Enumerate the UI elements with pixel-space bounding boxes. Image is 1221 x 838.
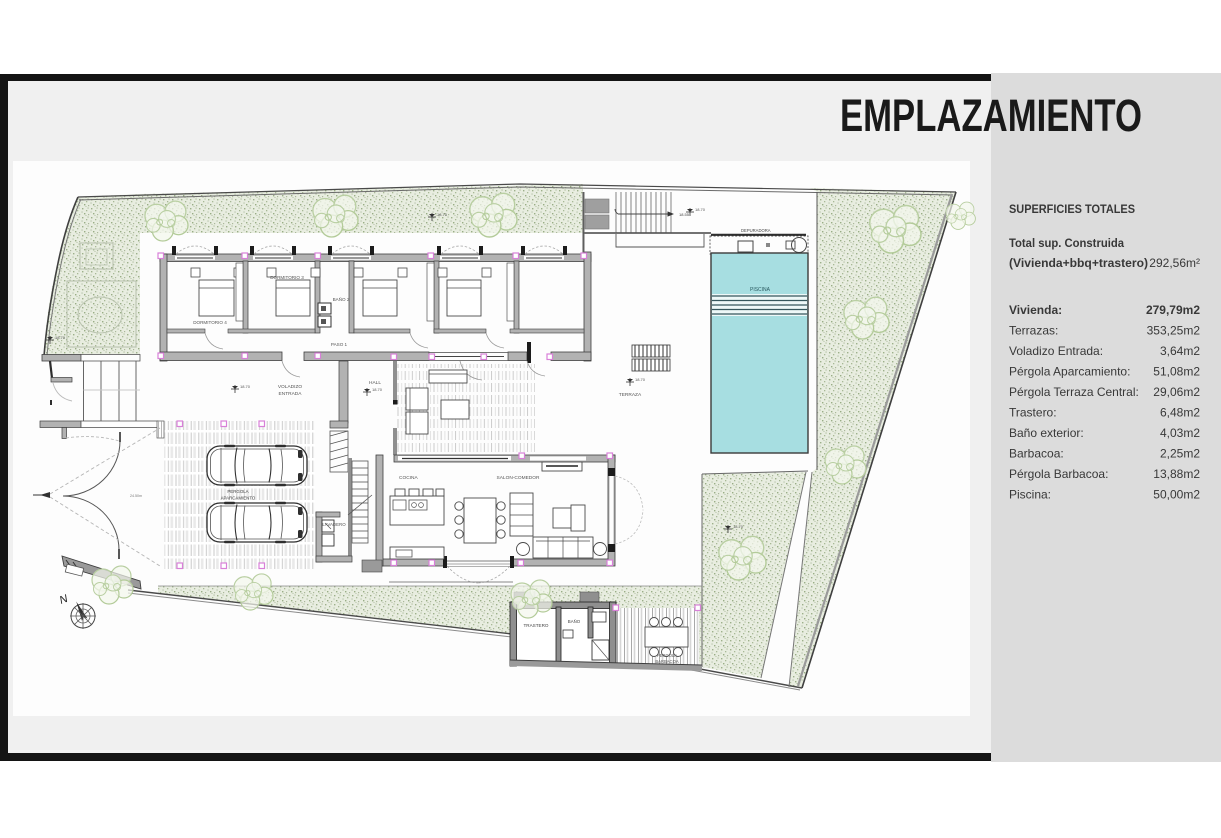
svg-text:Barbacoa:: Barbacoa: — [1009, 447, 1064, 461]
svg-text:50,00m2: 50,00m2 — [1153, 488, 1200, 502]
svg-text:TERRAZA: TERRAZA — [619, 392, 642, 398]
svg-text:DORMITORIO 4: DORMITORIO 4 — [193, 320, 227, 325]
svg-text:Voladizo Entrada:: Voladizo Entrada: — [1009, 344, 1103, 358]
svg-text:29,06m2: 29,06m2 — [1153, 385, 1200, 399]
svg-text:51,08m2: 51,08m2 — [1153, 365, 1200, 379]
svg-text:279,79m2: 279,79m2 — [1146, 303, 1200, 317]
svg-text:292,56m²: 292,56m² — [1149, 256, 1200, 270]
svg-text:Trastero:: Trastero: — [1009, 406, 1057, 420]
svg-text:PERGOLA: PERGOLA — [227, 489, 248, 494]
svg-text:Pérgola Aparcamiento:: Pérgola Aparcamiento: — [1009, 365, 1130, 379]
svg-text:Pérgola Terraza Central:: Pérgola Terraza Central: — [1009, 385, 1139, 399]
svg-text:4,03m2: 4,03m2 — [1160, 426, 1200, 440]
svg-text:BAÑO: BAÑO — [568, 619, 581, 624]
svg-text:PASO 1: PASO 1 — [331, 342, 348, 347]
svg-text:PERGOLA: PERGOLA — [657, 653, 677, 658]
svg-text:DEPURADORA: DEPURADORA — [741, 228, 771, 233]
svg-text:6,48m2: 6,48m2 — [1160, 406, 1200, 420]
svg-text:18.55: 18.55 — [679, 212, 690, 217]
svg-text:Piscina:: Piscina: — [1009, 488, 1051, 502]
svg-text:BARBACOA: BARBACOA — [655, 659, 678, 664]
svg-text:SUPERFICIES TOTALES: SUPERFICIES TOTALES — [1009, 202, 1135, 216]
svg-text:TRASTERO: TRASTERO — [523, 623, 548, 628]
svg-text:13,88m2: 13,88m2 — [1153, 467, 1200, 481]
svg-text:SALON-COMEDOR: SALON-COMEDOR — [497, 475, 540, 481]
svg-text:Total sup. Construida: Total sup. Construida — [1009, 236, 1124, 250]
svg-text:BAÑO 2: BAÑO 2 — [333, 296, 350, 302]
svg-text:LAVADERO: LAVADERO — [322, 522, 346, 527]
svg-text:24.50m: 24.50m — [130, 494, 142, 498]
svg-text:Vivienda:: Vivienda: — [1009, 303, 1062, 317]
svg-text:Baño exterior:: Baño exterior: — [1009, 426, 1084, 440]
svg-text:Pérgola Barbacoa:: Pérgola Barbacoa: — [1009, 467, 1108, 481]
svg-text:Terrazas:: Terrazas: — [1009, 324, 1058, 338]
svg-text:(Vivienda+bbq+trastero): (Vivienda+bbq+trastero) — [1009, 256, 1148, 270]
svg-text:18.70: 18.70 — [240, 384, 251, 389]
svg-text:VOLADIZO: VOLADIZO — [278, 384, 303, 390]
svg-text:2,25m2: 2,25m2 — [1160, 447, 1200, 461]
svg-text:ENTRADA: ENTRADA — [279, 391, 303, 397]
svg-text:COCINA: COCINA — [399, 475, 418, 481]
svg-text:HALL: HALL — [369, 380, 381, 386]
svg-text:353,25m2: 353,25m2 — [1147, 324, 1201, 338]
svg-text:PISCINA: PISCINA — [750, 287, 771, 293]
svg-text:3,64m2: 3,64m2 — [1160, 344, 1200, 358]
svg-text:APARCAMIENTO: APARCAMIENTO — [221, 496, 256, 501]
svg-text:EMPLAZAMIENTO: EMPLAZAMIENTO — [840, 90, 1142, 141]
svg-text:DORMITORIO 3: DORMITORIO 3 — [270, 275, 304, 280]
